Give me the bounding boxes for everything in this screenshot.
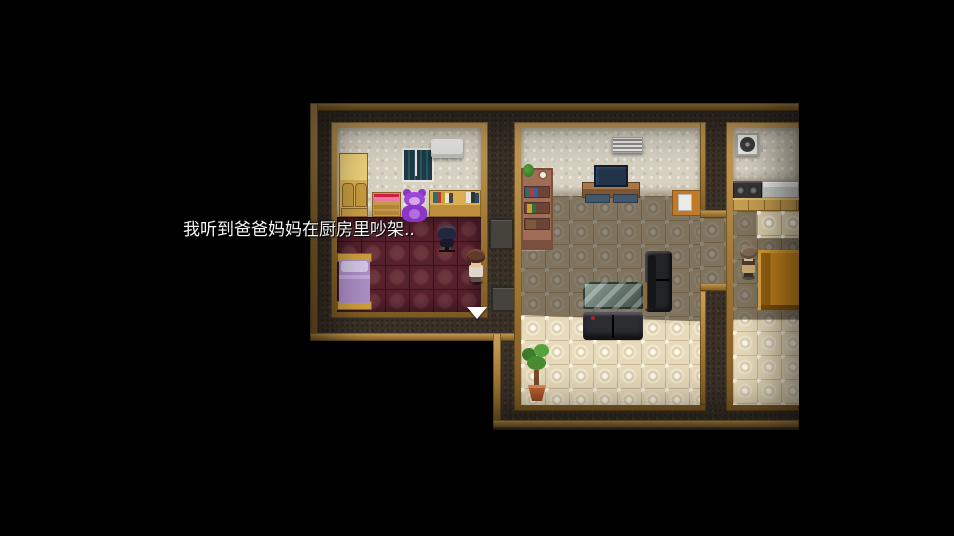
side-cabinet xyxy=(672,190,701,216)
office-chair xyxy=(436,226,458,252)
continue-arrow-icon[interactable] xyxy=(467,307,487,319)
shelf-plant-icon xyxy=(523,164,534,177)
teddy-bear xyxy=(401,189,428,223)
bedroom-ac-unit xyxy=(431,139,463,158)
sofa xyxy=(583,312,643,340)
ventilation-fan-icon xyxy=(736,133,759,156)
tv-stand-drawer-left xyxy=(585,194,610,203)
kitchen-cabinets xyxy=(733,198,799,211)
outer-trim-wing-left xyxy=(493,333,501,428)
game-screen[interactable]: 我听到爸爸妈妈在厨房里吵架.. xyxy=(0,0,954,536)
bedroom-door-mat-top[interactable] xyxy=(489,218,514,250)
outer-trim-top xyxy=(310,103,799,111)
bedroom-door-mat-bottom[interactable] xyxy=(491,286,516,312)
kitchen-counter xyxy=(762,181,799,198)
game-viewport[interactable] xyxy=(0,0,954,536)
player-character[interactable] xyxy=(466,249,486,286)
dresser xyxy=(372,192,401,217)
bedroom-window xyxy=(402,148,434,182)
desk-with-books xyxy=(429,190,481,217)
outer-trim-bedroom-bottom xyxy=(310,333,521,341)
tv-stand-drawer-right xyxy=(613,194,638,203)
bookshelf xyxy=(521,168,553,250)
partition-wall-upper xyxy=(706,128,726,210)
clock-icon xyxy=(538,170,548,180)
npc-hair xyxy=(740,246,757,259)
livingroom-wall-vent xyxy=(612,137,643,153)
corner-sofa xyxy=(645,251,672,312)
player-hair xyxy=(467,249,485,263)
glass-coffee-table xyxy=(583,282,643,309)
wardrobe xyxy=(339,153,368,217)
dining-table xyxy=(758,250,799,310)
tv-screen xyxy=(594,165,628,187)
bed xyxy=(337,253,372,310)
dialogue-text: 我听到爸爸妈妈在厨房里吵架.. xyxy=(183,221,415,240)
parent-npc[interactable] xyxy=(739,246,758,280)
outer-trim-bottom xyxy=(493,420,799,428)
potted-plant xyxy=(521,344,553,402)
